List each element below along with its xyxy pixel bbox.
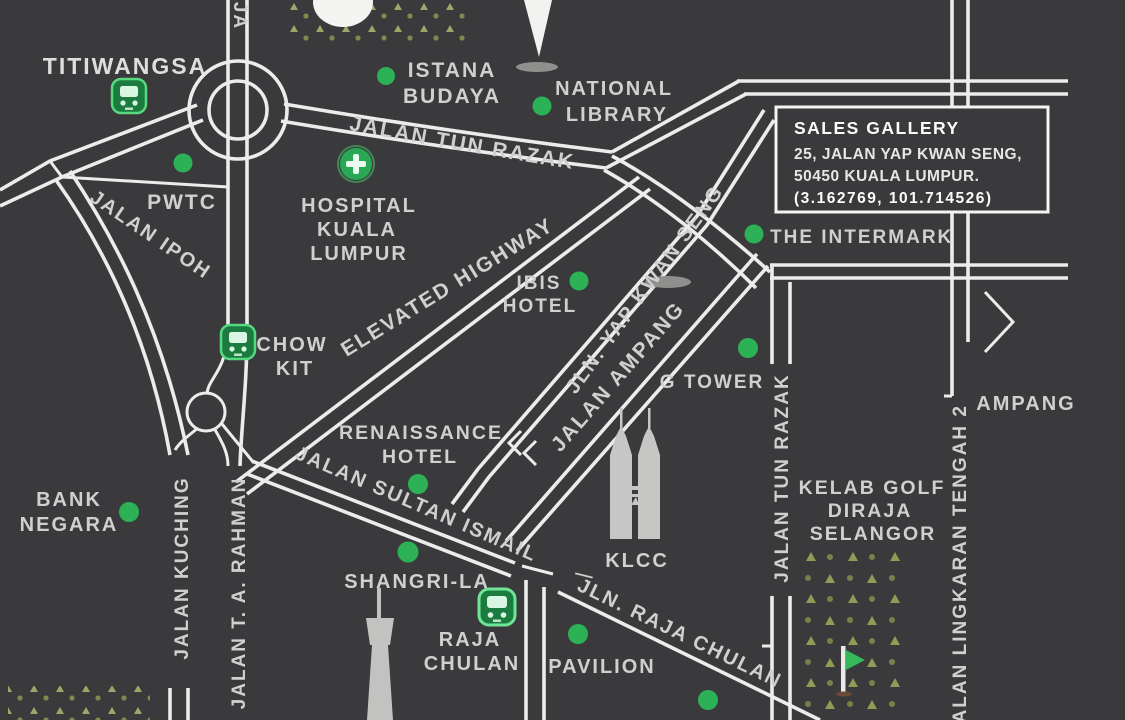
place-label-bank-negara-2: NEGARA — [20, 514, 119, 536]
road-label-jalan-kuching: JALAN KUCHING — [172, 476, 193, 659]
poi-dot-ibis-hotel — [570, 272, 589, 291]
place-label-raja-chulan-2: CHULAN — [424, 653, 520, 675]
road-label-top-fragment: JA — [229, 2, 250, 30]
poi-dot-bank-negara — [119, 502, 139, 522]
place-label-kelab-golf-1: KELAB GOLF — [799, 477, 946, 499]
place-label-shangri-la: SHANGRI-LA — [344, 571, 490, 593]
road-label-jalan-tun-razak-south: JALAN TUN RAZAK — [772, 373, 793, 582]
place-label-g-tower: G TOWER — [660, 372, 764, 393]
place-label-kelab-golf-2: DIRAJA — [828, 500, 913, 522]
place-label-ibis-1: IBIS — [517, 273, 562, 294]
place-label-pwtc: PWTC — [147, 191, 217, 214]
monument-shadow — [516, 62, 558, 72]
place-label-renaissance-1: RENAISSANCE — [339, 422, 503, 444]
sales-gallery-address-1: 25, JALAN YAP KWAN SENG, — [794, 146, 1022, 163]
direction-label-ampang: AMPANG — [976, 393, 1075, 415]
place-label-hospital-2: KUALA — [317, 219, 397, 241]
poi-dot-raja-chulan-south — [698, 690, 718, 710]
kl-location-map: JALAN TUN RAZAK JALAN IPOH ELEVATED HIGH… — [0, 0, 1125, 720]
place-label-national-library-2: LIBRARY — [566, 104, 668, 126]
poi-dot-g-tower — [738, 338, 758, 358]
poi-dot-national-library — [533, 97, 552, 116]
sales-gallery-callout: SALES GALLERY 25, JALAN YAP KWAN SENG, 5… — [776, 107, 1048, 212]
place-label-ibis-2: HOTEL — [503, 296, 577, 317]
place-label-istana-budaya-1: ISTANA — [408, 59, 497, 82]
map-canvas: JALAN TUN RAZAK JALAN IPOH ELEVATED HIGH… — [0, 0, 1125, 720]
road-label-jalan-ta-rahman: JALAN T. A. RAHMAN — [229, 477, 250, 710]
poi-dot-istana-budaya — [377, 67, 395, 85]
road-label-jalan-lingkaran-tengah-2: JALAN LINGKARAN TENGAH 2 — [950, 404, 971, 720]
place-label-chow-kit-2: KIT — [276, 358, 314, 380]
hospital-icon — [338, 146, 374, 182]
place-label-titiwangsa: TITIWANGSA — [43, 53, 207, 79]
place-label-renaissance-2: HOTEL — [382, 446, 458, 468]
station-icon-raja-chulan — [479, 589, 515, 625]
place-label-national-library-1: NATIONAL — [555, 78, 673, 100]
sales-gallery-coordinates: (3.162769, 101.714526) — [794, 190, 992, 207]
station-icon-titiwangsa — [112, 79, 146, 113]
place-label-istana-budaya-2: BUDAYA — [403, 85, 501, 108]
poi-dot-pwtc — [174, 154, 193, 173]
place-label-bank-negara-1: BANK — [36, 489, 102, 511]
station-icon-chow-kit — [221, 325, 255, 359]
place-label-pavilion: PAVILION — [548, 656, 655, 678]
poi-dot-the-intermark — [745, 225, 764, 244]
poi-dot-renaissance — [408, 474, 428, 494]
poi-dot-shangri-la — [398, 542, 419, 563]
park-area-north — [283, 0, 465, 44]
place-label-kelab-golf-3: SELANGOR — [810, 523, 937, 545]
sales-gallery-title: SALES GALLERY — [794, 118, 960, 138]
park-area-southwest — [8, 686, 150, 720]
place-label-hospital-3: LUMPUR — [310, 243, 408, 265]
sales-gallery-address-2: 50450 KUALA LUMPUR. — [794, 168, 980, 185]
place-label-chow-kit-1: CHOW — [256, 334, 327, 356]
place-label-the-intermark: THE INTERMARK — [770, 227, 953, 248]
golf-course-area — [802, 552, 906, 720]
place-label-hospital-1: HOSPITAL — [301, 195, 417, 217]
poi-dot-pavilion — [568, 624, 588, 644]
place-label-raja-chulan-1: RAJA — [439, 629, 501, 651]
place-label-klcc: KLCC — [605, 550, 669, 572]
